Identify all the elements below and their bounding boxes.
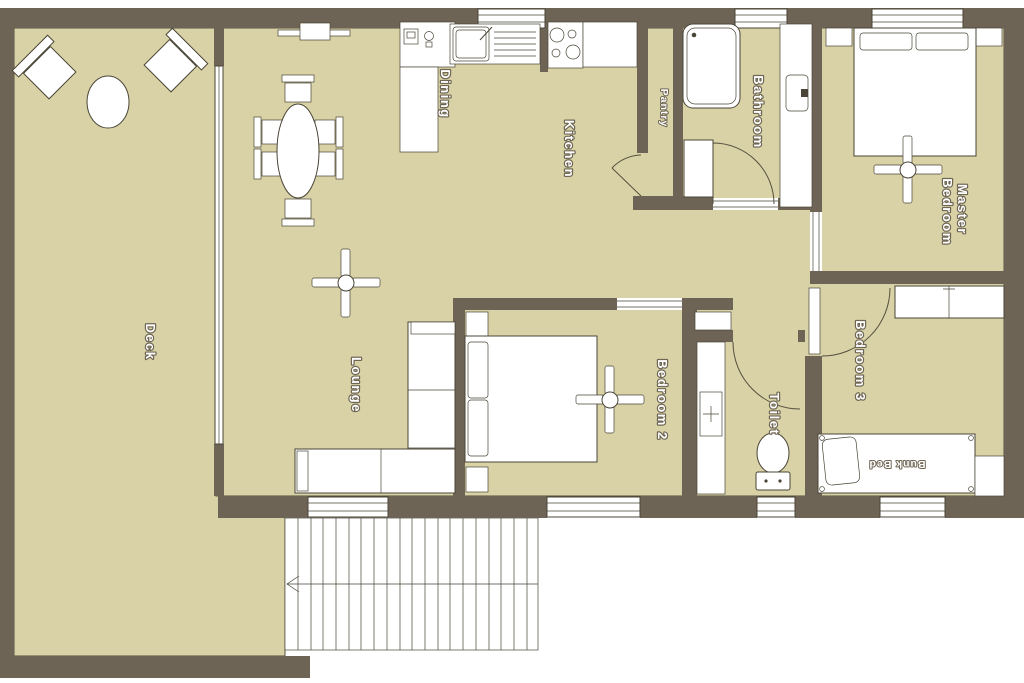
wall-deck-left — [0, 28, 14, 678]
dining-table — [277, 104, 319, 198]
wall-kitchen-pier — [540, 22, 548, 72]
stove-cooktop — [548, 22, 583, 68]
wall-right-exterior — [1004, 28, 1024, 518]
nightstand — [466, 467, 488, 492]
floor-plan-drawing: Deck Lounge Dining Kitchen Pantry Bathro… — [0, 0, 1024, 683]
label-bedroom2: Bedroom 2 — [655, 359, 670, 440]
shower-tray — [684, 140, 713, 197]
nightstand — [466, 312, 488, 336]
window-bathroom — [735, 9, 787, 28]
label-deck: Deck — [143, 323, 158, 360]
dining-chair — [282, 75, 314, 82]
wall-bottom-3 — [640, 496, 757, 518]
dining-chair — [285, 199, 311, 218]
label-bunk-bed: Bunk Bed — [868, 458, 925, 470]
window-toilet — [757, 497, 795, 517]
label-pantry: Pantry — [658, 89, 670, 128]
wall-hall-north-1 — [633, 196, 713, 210]
label-master-bedroom: Master Bedroom — [940, 178, 970, 246]
kitchen-sink — [450, 24, 540, 64]
kitchen-counter-east — [583, 22, 637, 67]
window-bedroom2 — [547, 497, 640, 517]
wall-deck-bottom — [0, 656, 310, 678]
deck-table — [87, 76, 129, 128]
toilet-vanity — [697, 342, 725, 494]
window-master-bedroom — [872, 9, 963, 28]
kitchen-counter-return — [400, 67, 438, 152]
nightstand — [976, 28, 1002, 46]
wall-master-south — [812, 271, 1004, 284]
floor-plan: Deck Lounge Dining Kitchen Pantry Bathro… — [0, 0, 1024, 683]
doorway-bedroom2 — [617, 298, 682, 310]
label-dining: Dining — [438, 69, 453, 118]
master-bed — [854, 28, 976, 156]
label-lounge: Lounge — [349, 357, 364, 413]
bathroom-vanity — [780, 24, 812, 207]
window-bedroom3 — [880, 497, 945, 517]
nightstand — [826, 28, 852, 46]
wall-bottom-1 — [218, 496, 308, 518]
bedroom3-cabinet — [975, 456, 1004, 496]
wall-toilet-north-stub — [798, 330, 805, 342]
wall-bottom-2 — [388, 496, 547, 518]
label-toilet: Toilet — [767, 393, 782, 436]
label-kitchen: Kitchen — [562, 120, 577, 178]
wall-closet-north — [682, 298, 733, 310]
label-bathroom: Bathroom — [751, 75, 766, 148]
toilet-fixture — [756, 433, 790, 490]
wall-pantry-east — [673, 28, 683, 210]
doorway-master-bedroom — [810, 212, 822, 271]
stairs — [285, 518, 538, 650]
window-lounge — [308, 497, 388, 517]
glass-wall-deck — [215, 66, 223, 444]
bathtub — [683, 24, 740, 108]
doorway-bathroom — [713, 198, 778, 210]
wall-pantry-west — [637, 28, 648, 153]
wall-bottom-4 — [795, 496, 880, 518]
wall-toilet-north-west — [682, 330, 733, 342]
wall-bottom-5 — [945, 496, 1004, 518]
wall-deck-stub-bottom — [214, 444, 224, 496]
built-in-wardrobe — [895, 286, 1004, 318]
linen-closet — [695, 312, 731, 330]
door-leaf-bedroom3 — [809, 288, 820, 354]
wall-bedroom2-north — [453, 298, 617, 310]
label-bedroom3: Bedroom 3 — [853, 320, 868, 401]
wall-deck-stub-top — [214, 28, 224, 66]
